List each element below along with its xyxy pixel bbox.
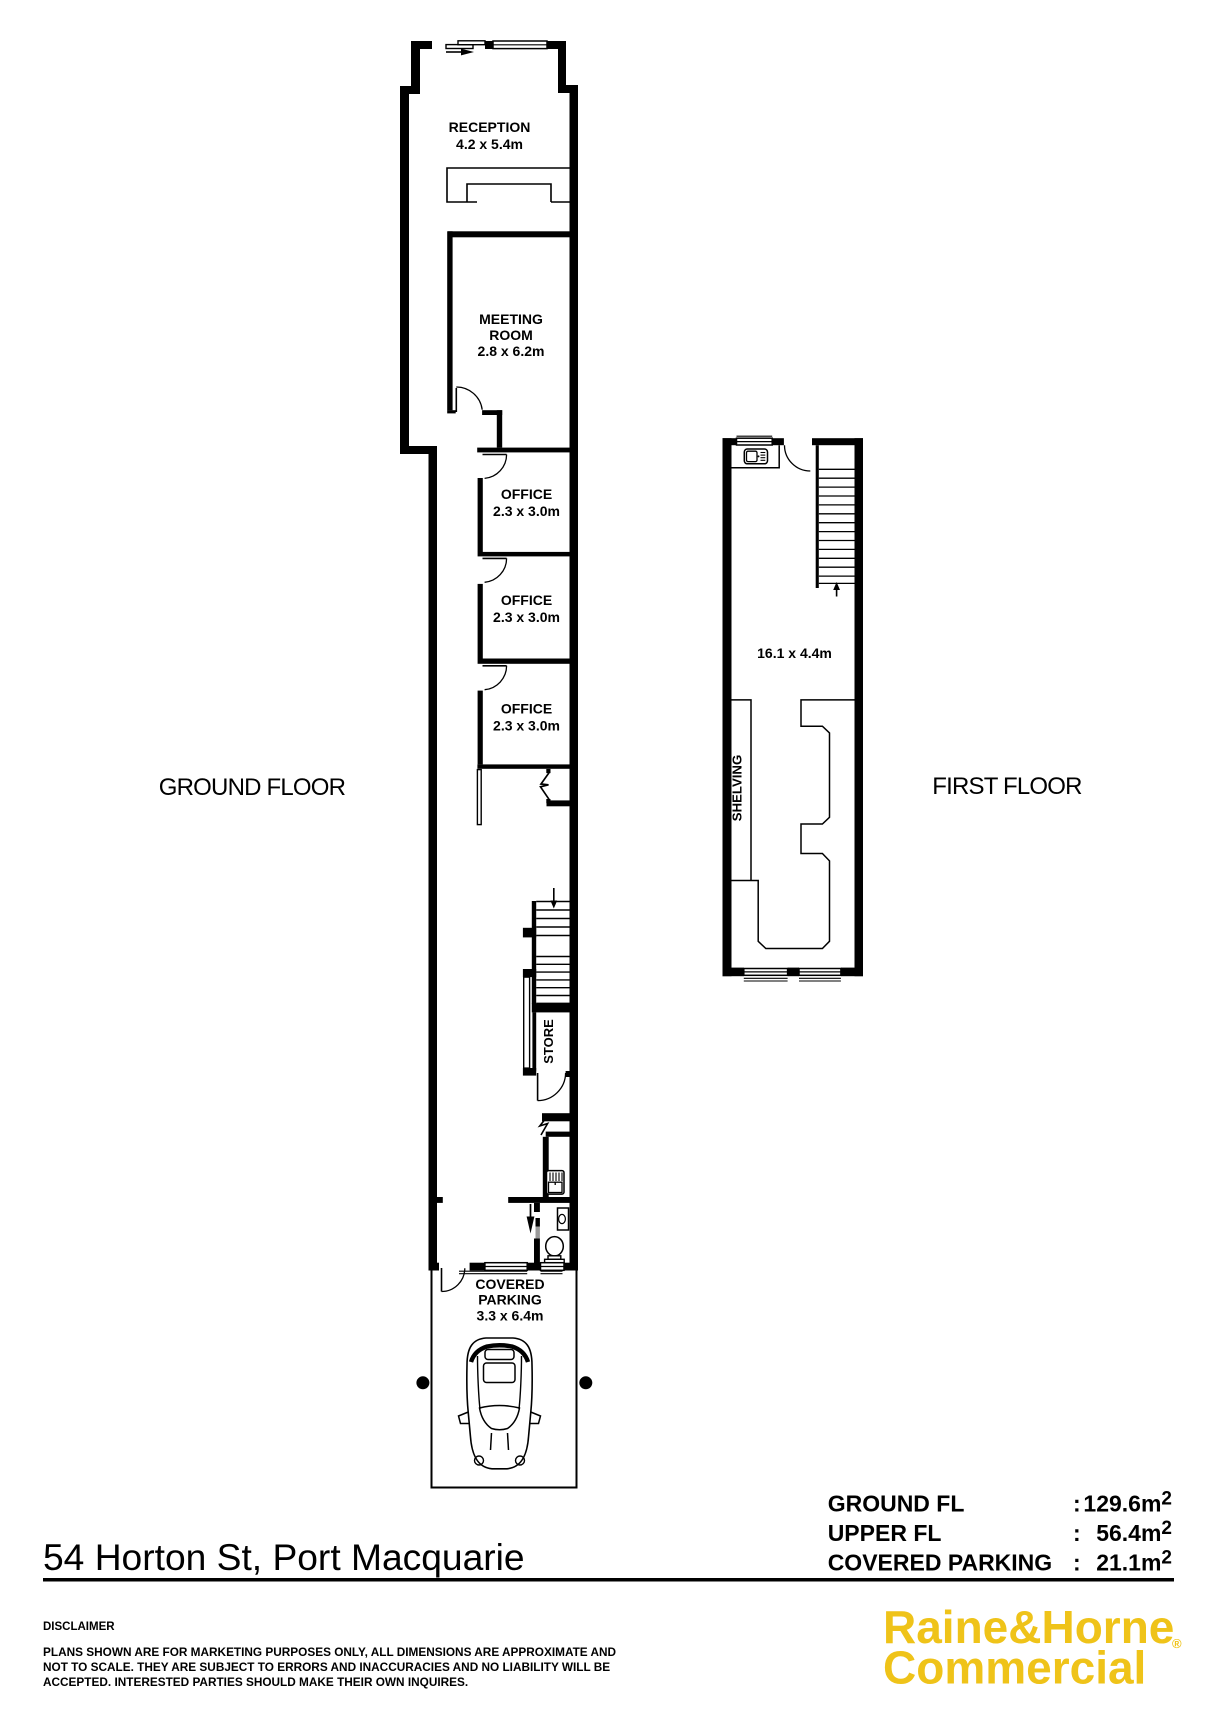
svg-text:NOT TO SCALE. THEY ARE SUBJECT: NOT TO SCALE. THEY ARE SUBJECT TO ERRORS… bbox=[43, 1660, 610, 1674]
svg-text:21.1m2: 21.1m2 bbox=[1096, 1547, 1172, 1575]
svg-text:GROUND FLOOR: GROUND FLOOR bbox=[159, 774, 346, 801]
svg-text:2.3 x 3.0m: 2.3 x 3.0m bbox=[493, 718, 560, 734]
svg-text:GROUND FL: GROUND FL bbox=[828, 1490, 965, 1516]
svg-text:56.4m2: 56.4m2 bbox=[1096, 1518, 1172, 1546]
svg-text:Commercial: Commercial bbox=[883, 1641, 1146, 1693]
svg-text:DISCLAIMER: DISCLAIMER bbox=[43, 1621, 115, 1633]
svg-text:MEETING: MEETING bbox=[479, 311, 543, 327]
svg-text:ACCEPTED. INTERESTED PARTIES S: ACCEPTED. INTERESTED PARTIES SHOULD MAKE… bbox=[43, 1675, 468, 1689]
svg-text:PARKING: PARKING bbox=[478, 1292, 542, 1308]
svg-text:OFFICE: OFFICE bbox=[501, 592, 552, 608]
svg-text:®: ® bbox=[1172, 1636, 1182, 1651]
svg-text:PLANS SHOWN ARE FOR MARKETING: PLANS SHOWN ARE FOR MARKETING PURPOSES O… bbox=[43, 1645, 617, 1659]
svg-text:FIRST FLOOR: FIRST FLOOR bbox=[932, 773, 1082, 800]
svg-text:16.1 x 4.4m: 16.1 x 4.4m bbox=[757, 645, 832, 661]
svg-text:COVERED PARKING: COVERED PARKING bbox=[828, 1549, 1052, 1575]
svg-text:2.3 x 3.0m: 2.3 x 3.0m bbox=[493, 503, 560, 519]
svg-text::: : bbox=[1073, 1520, 1081, 1546]
svg-text:ROOM: ROOM bbox=[489, 327, 533, 343]
svg-text:COVERED: COVERED bbox=[475, 1276, 544, 1292]
svg-text:4.2 x 5.4m: 4.2 x 5.4m bbox=[456, 136, 523, 152]
svg-text:54 Horton St, Port Macquarie: 54 Horton St, Port Macquarie bbox=[43, 1536, 525, 1578]
svg-text:OFFICE: OFFICE bbox=[501, 701, 552, 717]
svg-text:2.3 x 3.0m: 2.3 x 3.0m bbox=[493, 609, 560, 625]
svg-text:3.3 x 6.4m: 3.3 x 6.4m bbox=[477, 1308, 544, 1324]
svg-text:UPPER FL: UPPER FL bbox=[828, 1520, 942, 1546]
svg-text::: : bbox=[1073, 1490, 1081, 1516]
svg-text:RECEPTION: RECEPTION bbox=[449, 119, 531, 135]
svg-text:129.6m2: 129.6m2 bbox=[1083, 1488, 1172, 1516]
svg-text:2.8 x 6.2m: 2.8 x 6.2m bbox=[478, 343, 545, 359]
svg-text:SHELVING: SHELVING bbox=[730, 755, 745, 821]
svg-text:OFFICE: OFFICE bbox=[501, 486, 552, 502]
svg-text::: : bbox=[1073, 1549, 1081, 1575]
svg-text:STORE: STORE bbox=[541, 1019, 556, 1064]
